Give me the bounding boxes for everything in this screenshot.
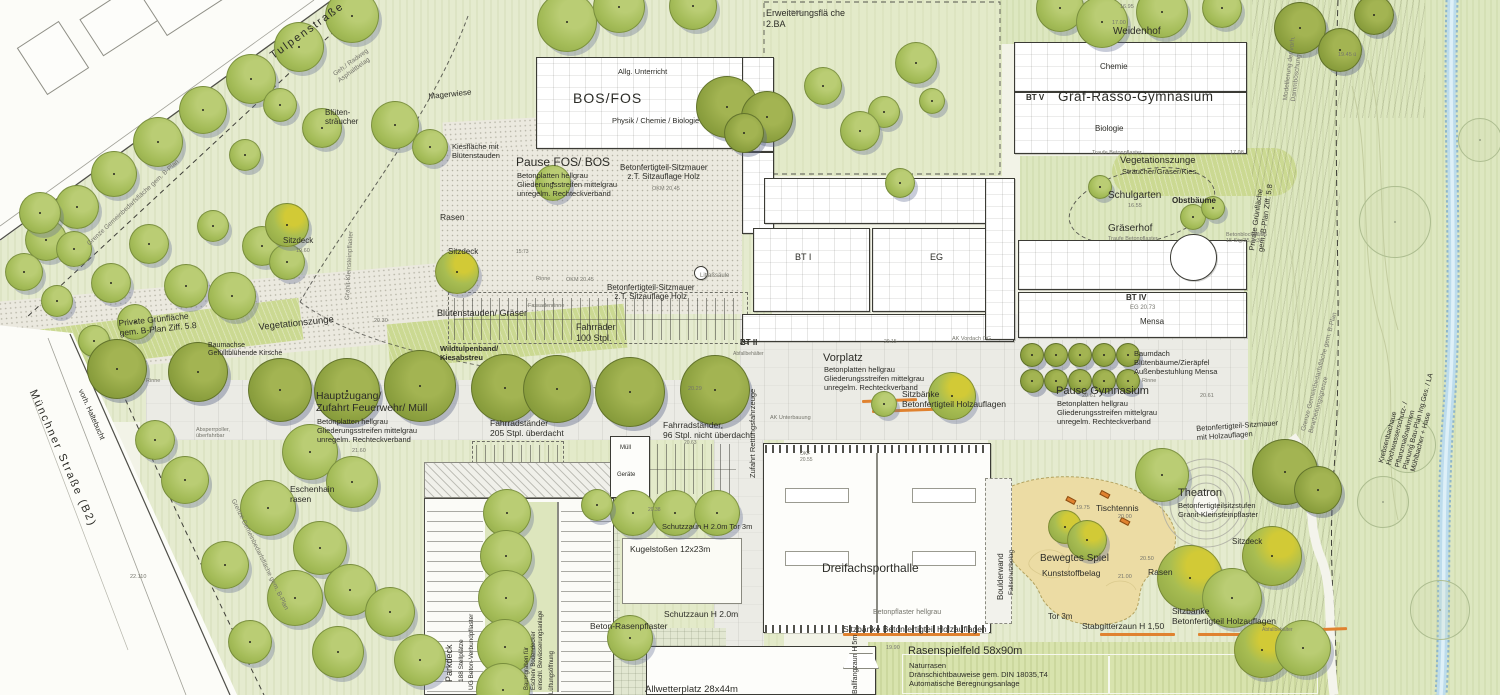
- plan-label: Granit-Kleinsteinpflaster: [344, 231, 355, 301]
- plan-label: Baumachse Gefülltblühende Kirsche: [208, 342, 282, 359]
- labels-layer: TulpenstraßeGeh./ Radweg AsphaltbelagGre…: [0, 0, 1500, 695]
- plan-label: Ballfangzaun H 5m: [852, 635, 860, 694]
- plan-label: Baumgraben für Eschen/ Bodendecker einsc…: [524, 611, 545, 690]
- plan-label: Rasen: [1148, 567, 1173, 577]
- plan-label: Dreifachsporthalle: [822, 561, 919, 575]
- plan-label: BT V: [1026, 93, 1044, 102]
- plan-label: 19.90: [886, 645, 900, 651]
- plan-label: 20.61: [1082, 393, 1096, 399]
- plan-label: Kugelstoßen 12x23m: [630, 544, 710, 554]
- plan-label: BT I: [795, 252, 811, 263]
- plan-label: Tor 3m: [1048, 612, 1072, 621]
- plan-label: 20.30: [374, 318, 388, 324]
- plan-label: Vegetationszunge: [1120, 155, 1196, 166]
- plan-label: 16.55: [1128, 203, 1142, 209]
- plan-label: Parkdeck: [444, 644, 455, 682]
- plan-label: EG: [930, 252, 943, 263]
- plan-label: vorh. Haltebucht: [76, 388, 106, 441]
- plan-label: Betonplatten hellgrau Gliederungsstreife…: [1057, 400, 1157, 427]
- plan-label: Mensa: [1140, 317, 1164, 326]
- plan-label: Boulderwand: [996, 553, 1005, 600]
- plan-label: Rinne: [1142, 378, 1156, 384]
- plan-label: AK Vordach OG: [952, 336, 991, 342]
- plan-label: 20.15: [884, 340, 897, 346]
- plan-label: Absperrpoller, überfahrbar: [196, 427, 230, 440]
- plan-label: Vorplatz: [823, 352, 863, 365]
- plan-label: 15.73: [516, 250, 529, 256]
- plan-label: Traufe Betonpflaster: [1092, 150, 1142, 156]
- plan-label: AK Unterbauung: [770, 415, 811, 421]
- plan-label: Tischtennis: [1096, 503, 1139, 513]
- plan-label: Abfallbehälter: [733, 352, 764, 358]
- plan-label: Fahrradständer 205 Stpl. überdacht: [490, 418, 564, 438]
- plan-label: Bewegtes Spiel: [1040, 553, 1109, 565]
- plan-label: Grenze Gemeinbedarfsfläche gem. B-Plan: [229, 498, 290, 611]
- plan-label: EG 20.73: [1130, 305, 1155, 312]
- plan-label: Geh./ Radweg Asphaltbelag: [332, 48, 375, 85]
- plan-label: Betonfertigteil-Sitzmauer mit Holzauflag…: [1196, 419, 1279, 442]
- plan-label: Rasenspielfeld 58x90m: [908, 645, 1022, 658]
- plan-label: Krebsenbachaue Hochwasserschutz- / Pflan…: [1378, 344, 1449, 473]
- plan-label: Private Grünfläche gem. B-Plan Ziff. 5.8: [118, 310, 197, 338]
- plan-label: Biologie: [1095, 124, 1123, 133]
- plan-label: 17.00: [1112, 20, 1126, 26]
- plan-label: 17.08: [1230, 150, 1244, 156]
- plan-label: Fallschutzbelag: [1008, 550, 1016, 595]
- plan-label: Physik / Chemie / Biologie: [612, 117, 699, 126]
- plan-label: 16.95: [1120, 4, 1134, 10]
- plan-label: Theatron: [1178, 487, 1222, 500]
- plan-label: Schutzzaun H 2.0m Tor 3m: [662, 523, 752, 532]
- plan-label: Fassadenrinne: [528, 303, 564, 309]
- plan-label: Naturrasen Dränschichtbauweise gem. DIN …: [909, 662, 1048, 689]
- plan-label: Traufe Betonpflaster: [1108, 236, 1158, 242]
- plan-label: Grenze Gemeinbedarfsfläche gem. B-Plan: [86, 158, 181, 247]
- plan-label: 20.38: [648, 508, 661, 514]
- plan-label: 20.29: [688, 386, 702, 392]
- plan-label: OKM 20.45: [652, 186, 680, 192]
- plan-label: 20.50: [1140, 556, 1154, 562]
- plan-label: Rinne: [146, 378, 160, 384]
- plan-label: UG Beton-Verbundpflaster: [468, 614, 476, 690]
- plan-label: Chemie: [1100, 62, 1128, 71]
- plan-label: Sitzdeck: [1232, 537, 1262, 546]
- plan-label: Müll: [620, 445, 631, 452]
- plan-label: Eschenhain rasen: [290, 484, 334, 504]
- plan-label: BOS/FOS: [573, 90, 642, 107]
- plan-label: 19.75: [1076, 505, 1090, 511]
- plan-label: 21.00: [1118, 574, 1132, 580]
- plan-label: Fahrradständer, 96 Stpl. nicht überdacht: [663, 420, 752, 440]
- plan-label: Allwetterplatz 28x44m: [645, 684, 738, 695]
- plan-label: 20.63: [684, 441, 697, 447]
- plan-label: Betonfertigteil-Sitzmauer z.T. Sitzaufla…: [607, 283, 695, 302]
- plan-label: Betonplatten hellgrau Gliederungsstreife…: [317, 418, 417, 445]
- plan-label: Sitzbänke Betonfertigteil Holzauflagen: [1172, 606, 1276, 626]
- plan-label: OKM 20.45: [566, 277, 594, 283]
- plan-label: Blütenstauden/ Gräser: [437, 308, 527, 319]
- plan-label: 19.45 ü: [1338, 52, 1356, 58]
- plan-label: BT IV: [1126, 293, 1146, 302]
- plan-label: Sitzbänke Betonfertigteil Holzauflagen: [902, 389, 1006, 409]
- plan-label: Zufahrt Rettungsfahrzeuge: [749, 389, 758, 478]
- plan-label: Magerwiese: [428, 87, 472, 101]
- plan-label: Allg. Unterricht: [618, 68, 667, 77]
- plan-label: BT II: [740, 338, 757, 347]
- plan-label: Erweiterungsflä che 2.BA: [766, 8, 845, 29]
- plan-label: 19.60: [296, 248, 310, 254]
- plan-label: Betonfertigteil-Sitzmauer z.T. Sitzaufla…: [620, 163, 708, 182]
- plan-label: Beton-Rasenpflaster: [590, 621, 668, 631]
- plan-label: Kiesfläche mit Blütenstauden: [452, 143, 500, 161]
- plan-label: Sträucher/Gräser/Kies: [1122, 168, 1196, 177]
- plan-label: Vegetationszunge: [258, 314, 334, 333]
- plan-label: Hauptzugang/ Zufahrt Feuerwehr/ Müll: [316, 390, 427, 415]
- plan-label: Baumdach Blütenbäume/Zieräpfel Außenbest…: [1134, 350, 1217, 377]
- plan-label: Gräserhof: [1108, 223, 1152, 235]
- plan-label: Wildtulpenband/ Kiesabstreu: [440, 345, 498, 363]
- site-plan: TulpenstraßeGeh./ Radweg AsphaltbelagGre…: [0, 0, 1500, 695]
- plan-label: Modellierung der vorh. Dammböschung: [1282, 36, 1305, 102]
- plan-label: Schulgarten: [1108, 190, 1161, 202]
- plan-label: Betonplatten hellgrau Gliederungsstreife…: [517, 172, 617, 199]
- plan-label: 21.60: [352, 448, 366, 454]
- plan-label: 16.95: [788, 10, 802, 16]
- plan-label: 17.05: [1253, 232, 1267, 238]
- plan-label: 20.00: [1118, 514, 1132, 520]
- plan-label: Weidenhof: [1113, 26, 1161, 38]
- plan-label: Lüftungsöffnung: [549, 651, 556, 694]
- plan-label: Litfaßsäule: [700, 273, 729, 280]
- plan-label: Schutzzaun H 2.0m: [664, 609, 738, 619]
- plan-label: Sitzdeck: [283, 236, 313, 245]
- plan-label: 22.110: [130, 574, 146, 580]
- plan-label: Pause Gymnasium: [1056, 385, 1149, 398]
- plan-label: Abfallbehälter: [1262, 628, 1293, 634]
- plan-label: Sitzdeck: [448, 247, 478, 256]
- plan-label: Stabgitterzaun H 1,50: [1082, 621, 1164, 631]
- plan-label: Obstbäume: [1172, 196, 1216, 205]
- plan-label: Rinne: [536, 276, 550, 282]
- plan-label: Blüten- sträucher: [325, 108, 358, 127]
- plan-label: Pause FOS/ BOS: [516, 155, 610, 169]
- plan-label: Betonpflaster hellgrau: [873, 609, 941, 617]
- plan-label: Betonfertigteilsitzstufen Granit-Kleinst…: [1178, 502, 1258, 520]
- plan-label: Sitzbänke Betonfertigteil Holzauflagen: [843, 624, 987, 634]
- plan-label: Grenze Gemeinbedarfsfläche gem. B-Plan B…: [1300, 312, 1346, 434]
- plan-label: Rasen: [440, 212, 465, 222]
- plan-label: Fahrräder 100 Stpl.: [576, 322, 616, 343]
- plan-label: Graf-Rasso-Gymnasium: [1058, 89, 1214, 105]
- plan-label: OKF 20.55: [800, 452, 813, 464]
- plan-label: 20.61: [1200, 393, 1214, 399]
- plan-label: Geräte: [617, 472, 635, 479]
- plan-label: Tulpenstraße: [268, 0, 347, 62]
- plan-label: Kunststoffbelag: [1042, 568, 1100, 578]
- plan-label: 188 Stellplätze: [458, 639, 466, 682]
